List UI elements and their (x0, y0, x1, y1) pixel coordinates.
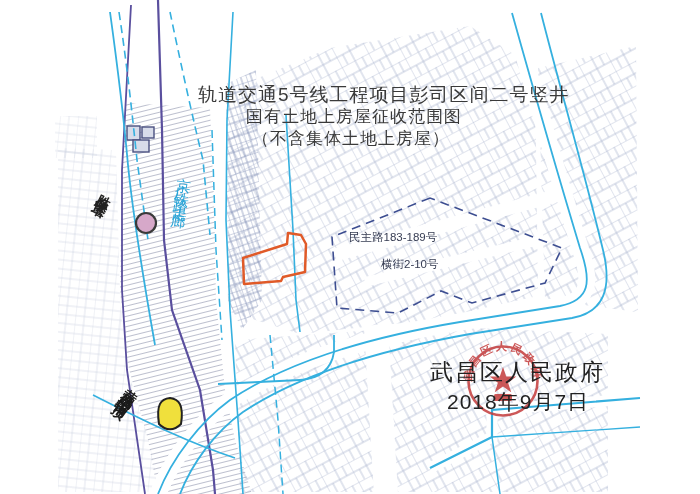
expropriation-map: 武昌区人民政府 轨道交通5号线工程项目彭司区间二号竖井 国有土地上房屋征收范围图… (0, 0, 700, 494)
map-title-line3: （不含集体土地上房屋） (252, 127, 450, 150)
pagoda-marker (136, 213, 156, 233)
address-label-heng-street: 横街2-10号 (381, 257, 439, 272)
bronze-top-marker (158, 398, 182, 429)
issuing-authority: 武昌区人民政府 (430, 357, 605, 388)
map-title-line2: 国有土地上房屋征收范围图 (246, 105, 462, 128)
address-label-minzhu-road: 民主路183-189号 (349, 230, 437, 245)
issue-date: 2018年9月7日 (447, 388, 589, 416)
map-linework: 武昌区人民政府 (0, 0, 700, 494)
